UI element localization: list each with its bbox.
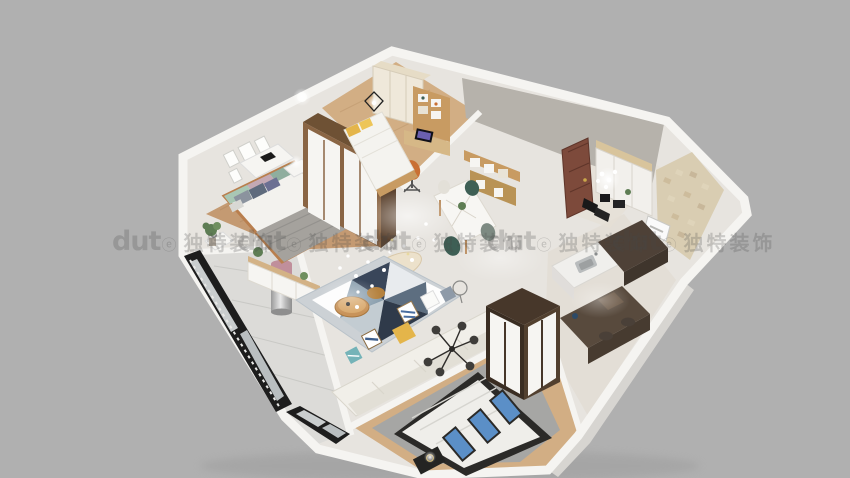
bar-stool	[621, 318, 635, 327]
plant	[300, 272, 308, 280]
render-canvas: dutⓔ 独特装饰 dutⓔ 独特装饰 dutⓔ 独特装饰 dutⓔ 独特装饰 …	[0, 0, 850, 478]
table-plant	[458, 202, 466, 210]
dining-chair-white	[438, 180, 450, 194]
door-knob	[583, 178, 587, 182]
faucet	[594, 252, 597, 255]
cluster-pendant-light	[596, 167, 620, 191]
apartment-3d-render	[0, 0, 850, 478]
lamp-glow	[289, 155, 303, 169]
kettle	[572, 313, 578, 319]
bar-stool	[599, 332, 613, 341]
plant	[253, 247, 263, 257]
wardrobe-dark	[486, 288, 560, 400]
